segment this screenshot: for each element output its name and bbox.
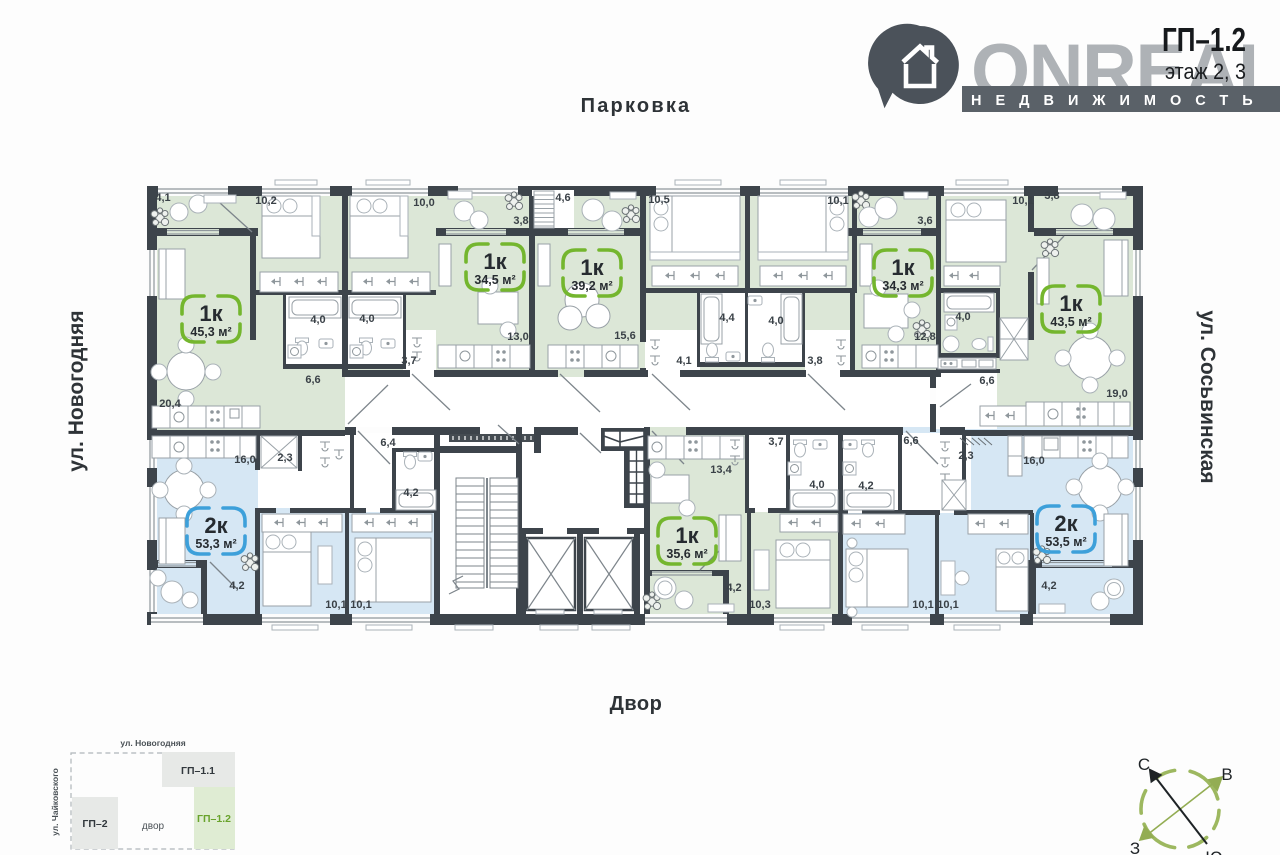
svg-text:ул. Новогодняя: ул. Новогодняя: [120, 738, 185, 748]
svg-text:45,3 м²: 45,3 м²: [190, 325, 231, 339]
svg-text:6,6: 6,6: [305, 374, 320, 386]
svg-text:2к: 2к: [1054, 511, 1078, 536]
svg-text:6,6: 6,6: [979, 375, 994, 387]
svg-text:53,3 м²: 53,3 м²: [195, 537, 236, 551]
svg-text:4,1: 4,1: [155, 192, 170, 204]
svg-text:3,8: 3,8: [807, 355, 822, 367]
svg-text:1к: 1к: [483, 249, 507, 274]
svg-text:ГП–2: ГП–2: [82, 818, 107, 830]
svg-text:13,0: 13,0: [507, 331, 528, 343]
svg-text:10,1: 10,1: [1012, 195, 1033, 207]
svg-text:10,2: 10,2: [255, 195, 276, 207]
svg-text:10,3: 10,3: [749, 599, 770, 611]
svg-text:1к: 1к: [199, 301, 223, 326]
svg-text:ул. Чайковского: ул. Чайковского: [50, 768, 60, 836]
svg-text:16,0: 16,0: [1023, 455, 1044, 467]
svg-text:ГП–1.1: ГП–1.1: [181, 765, 215, 777]
svg-text:ГП–1.2: ГП–1.2: [197, 813, 231, 825]
svg-text:4,0: 4,0: [809, 479, 824, 491]
svg-text:10,1: 10,1: [912, 599, 933, 611]
svg-text:2,3: 2,3: [958, 450, 973, 462]
svg-text:3,6: 3,6: [917, 215, 932, 227]
svg-text:10,1: 10,1: [325, 599, 346, 611]
svg-text:1к: 1к: [1059, 291, 1083, 316]
svg-text:10,1: 10,1: [827, 195, 848, 207]
svg-text:Двор: Двор: [610, 693, 663, 715]
svg-text:С: С: [1138, 755, 1150, 774]
svg-text:4,0: 4,0: [955, 311, 970, 323]
svg-text:1к: 1к: [675, 523, 699, 548]
svg-text:З: З: [1130, 839, 1140, 855]
svg-text:10,5: 10,5: [648, 194, 669, 206]
svg-text:10,1: 10,1: [350, 599, 371, 611]
svg-text:4,2: 4,2: [1041, 580, 1056, 592]
svg-text:4,0: 4,0: [768, 315, 783, 327]
svg-text:4,2: 4,2: [229, 580, 244, 592]
svg-text:3,8: 3,8: [513, 215, 528, 227]
svg-text:3,7: 3,7: [768, 436, 783, 448]
svg-text:4,2: 4,2: [726, 582, 741, 594]
svg-text:4,2: 4,2: [858, 480, 873, 492]
svg-text:2к: 2к: [204, 513, 228, 538]
svg-text:6,6: 6,6: [903, 435, 918, 447]
svg-text:20,4: 20,4: [159, 398, 181, 410]
svg-text:1к: 1к: [580, 255, 604, 280]
svg-text:19,0: 19,0: [1106, 388, 1127, 400]
svg-text:53,5 м²: 53,5 м²: [1045, 535, 1086, 549]
svg-text:3,7: 3,7: [401, 355, 416, 367]
svg-text:6,4: 6,4: [380, 437, 396, 449]
svg-text:43,5 м²: 43,5 м²: [1050, 315, 1091, 329]
svg-text:ГП–1.2: ГП–1.2: [1162, 21, 1246, 58]
svg-text:34,5 м²: 34,5 м²: [474, 273, 515, 287]
svg-text:12,8: 12,8: [914, 331, 935, 343]
svg-text:35,6 м²: 35,6 м²: [666, 547, 707, 561]
svg-text:1к: 1к: [891, 255, 915, 280]
svg-text:34,3 м²: 34,3 м²: [882, 279, 923, 293]
svg-text:4,1: 4,1: [676, 355, 691, 367]
svg-text:ул. Новогодняя: ул. Новогодняя: [65, 310, 88, 471]
svg-text:4,4: 4,4: [719, 312, 735, 324]
svg-text:2,3: 2,3: [277, 452, 292, 464]
svg-text:10,0: 10,0: [413, 197, 434, 209]
svg-text:Парковка: Парковка: [581, 95, 692, 117]
svg-text:этаж 2, 3: этаж 2, 3: [1165, 59, 1246, 84]
svg-text:10,1: 10,1: [937, 599, 958, 611]
svg-text:3,8: 3,8: [1044, 190, 1059, 202]
svg-text:В: В: [1221, 765, 1232, 784]
svg-text:Ю: Ю: [1205, 848, 1222, 855]
svg-text:4,0: 4,0: [310, 314, 325, 326]
svg-text:НЕДВИЖИМОСТЬ: НЕДВИЖИМОСТЬ: [971, 93, 1267, 109]
svg-text:15,6: 15,6: [614, 330, 635, 342]
svg-text:двор: двор: [142, 821, 165, 832]
svg-text:ул. Сосьвинская: ул. Сосьвинская: [1196, 310, 1219, 483]
svg-text:4,6: 4,6: [555, 192, 570, 204]
svg-text:4,0: 4,0: [359, 313, 374, 325]
svg-text:39,2 м²: 39,2 м²: [571, 279, 612, 293]
svg-text:16,0: 16,0: [234, 454, 255, 466]
svg-text:13,4: 13,4: [710, 464, 732, 476]
svg-text:4,2: 4,2: [403, 487, 418, 499]
